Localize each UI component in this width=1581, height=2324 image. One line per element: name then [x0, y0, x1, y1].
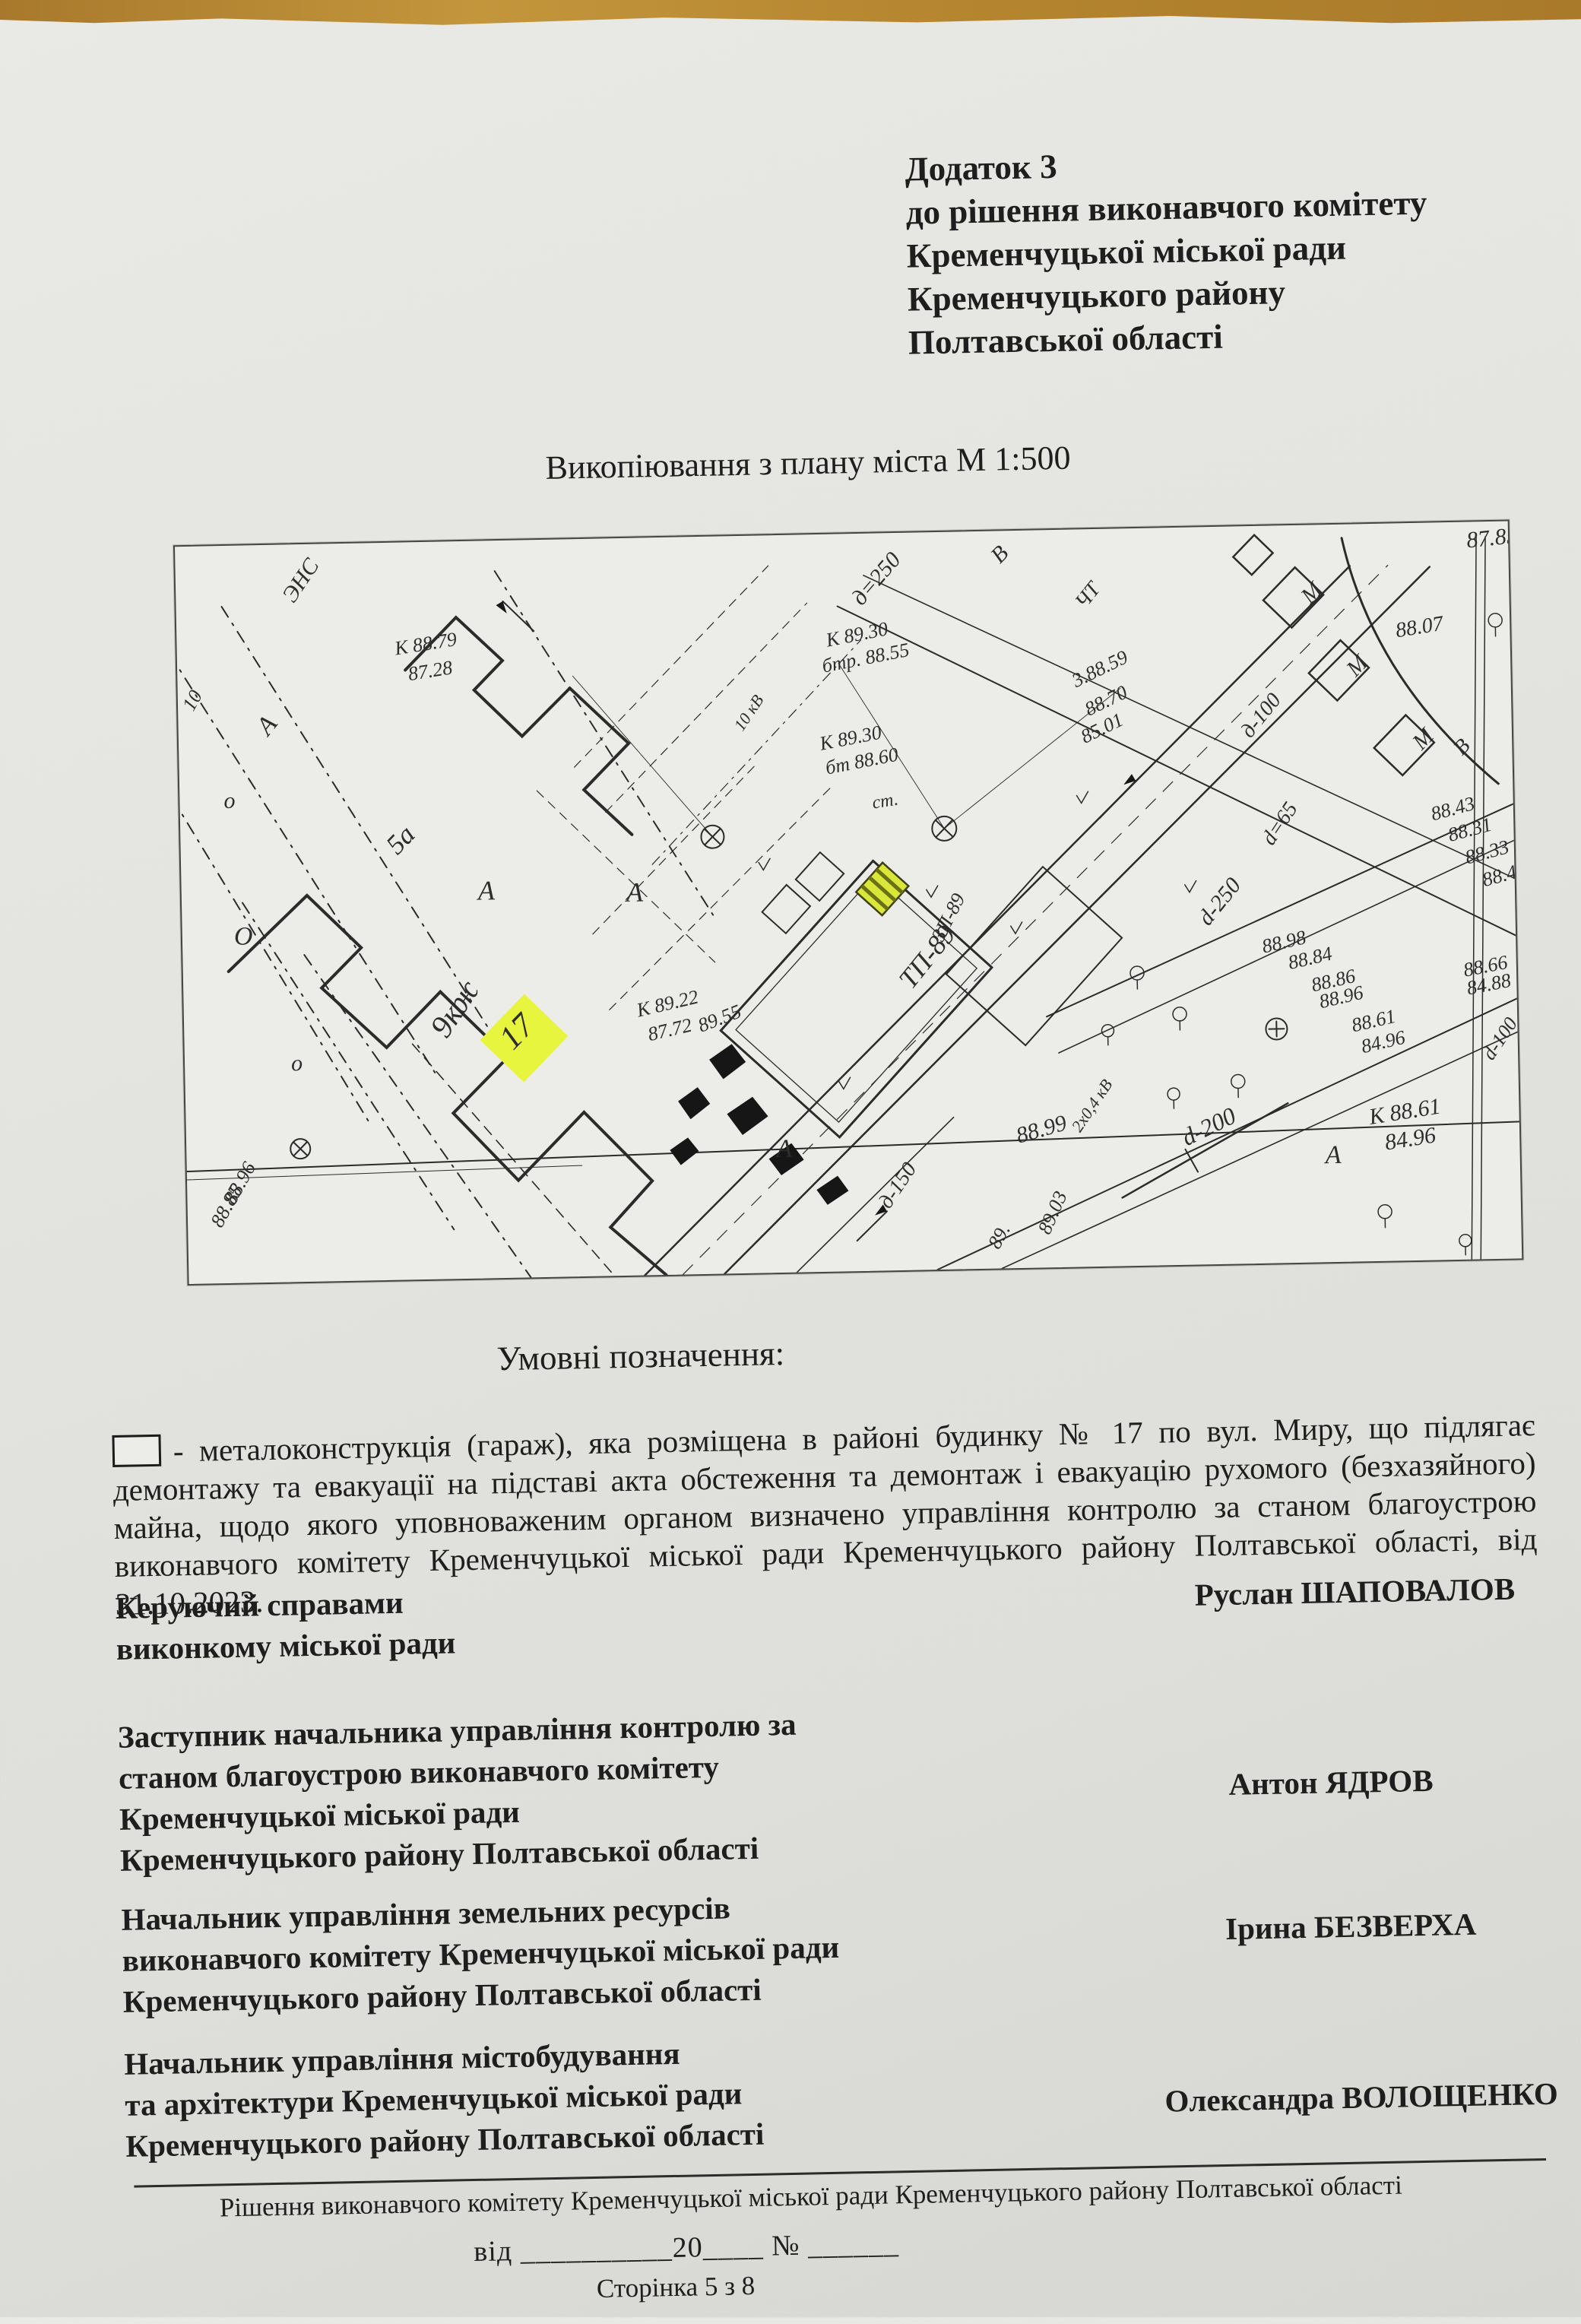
map-label: д=250 — [847, 547, 906, 610]
map-label: В — [986, 541, 1013, 568]
map-label: 87.85 — [1465, 523, 1519, 553]
map-label: 88.99 — [1013, 1110, 1069, 1148]
map-label: д-150 — [874, 1159, 921, 1213]
map-label: 5а — [380, 820, 421, 861]
map-label: 89. — [984, 1220, 1015, 1252]
map-label: О — [234, 922, 253, 950]
map-label: М — [1407, 722, 1440, 755]
signer-name: Руслан ШАПОВАЛОВ — [1194, 1568, 1515, 1615]
map-label: ЗП-89 — [927, 889, 970, 944]
appendix-header: Додаток 3 до рішення виконавчого комітет… — [905, 138, 1430, 365]
photographed-document: { "page": { "header_lines": [ "Додаток 3… — [0, 0, 1581, 2317]
signature-block: Заступник начальника управління контролю… — [118, 1689, 1544, 1881]
map-label: d=65 — [1257, 798, 1303, 850]
signer-name: Антон ЯДРОВ — [1228, 1760, 1434, 1805]
map-label: К 89.22 — [634, 986, 701, 1022]
map-label: ЧТ — [1070, 576, 1107, 613]
signer-name: Олександра ВОЛОЩЕНКО — [1164, 2073, 1558, 2122]
map-label: А — [476, 875, 496, 905]
signature-block: Начальник управління земельних ресурсів … — [121, 1872, 1546, 2022]
site-plan-drawing: ЭНСК 88.7987.28А10оОо5аАА9кжК 89.2287.72… — [175, 522, 1522, 1284]
map-label: о — [223, 788, 236, 813]
map-label: К 88.79 — [392, 628, 458, 660]
map-label: о — [291, 1051, 303, 1076]
map-label: ЭНС — [277, 553, 325, 607]
site-plan-map: ЭНСК 88.7987.28А10оОо5аАА9кжК 89.2287.72… — [173, 519, 1523, 1286]
map-label: 10 — [178, 686, 207, 715]
signer-name: Ірина БЕЗВЕРХА — [1225, 1904, 1477, 1949]
map-label: 10 кВ — [730, 691, 767, 734]
map-label: 88.85 — [206, 1181, 247, 1231]
map-label: 87.72 — [645, 1014, 694, 1046]
legend-heading: Умовні позначення: — [496, 1333, 784, 1378]
map-label: 84.96 — [1383, 1122, 1437, 1155]
signature-block: Начальник управління містобудування та а… — [124, 2016, 1549, 2167]
map-label: д-100 — [1236, 689, 1285, 742]
map-label: А — [1323, 1141, 1342, 1169]
map-label: d-250 — [1193, 873, 1247, 930]
map-label: А — [775, 1135, 793, 1163]
document-page: Додаток 3 до рішення виконавчого комітет… — [0, 0, 1581, 2321]
map-label: М — [1295, 576, 1328, 609]
map-title: Викопіювання з плану міста М 1:500 — [17, 428, 1581, 497]
map-label: В — [1449, 734, 1475, 760]
map-label: 9кж — [424, 974, 487, 1044]
map-label: А — [624, 877, 644, 907]
map-label: 2x0,4 кВ — [1067, 1076, 1116, 1135]
signature-blocks: Керуючий справами виконкому міської ради… — [115, 1560, 1548, 2167]
map-label: d-100 — [1478, 1013, 1522, 1064]
map-label: ст. — [871, 789, 900, 813]
garage-symbol-swatch — [112, 1435, 161, 1467]
map-label: М — [1341, 649, 1373, 682]
header-line: Полтавської області — [908, 311, 1430, 364]
map-labels: ЭНСК 88.7987.28А10оОо5аАА9кжК 89.2287.72… — [175, 522, 1522, 1268]
map-label: А — [250, 710, 283, 741]
map-label: 88.07 — [1394, 612, 1446, 643]
map-label: 89.03 — [1034, 1187, 1072, 1237]
